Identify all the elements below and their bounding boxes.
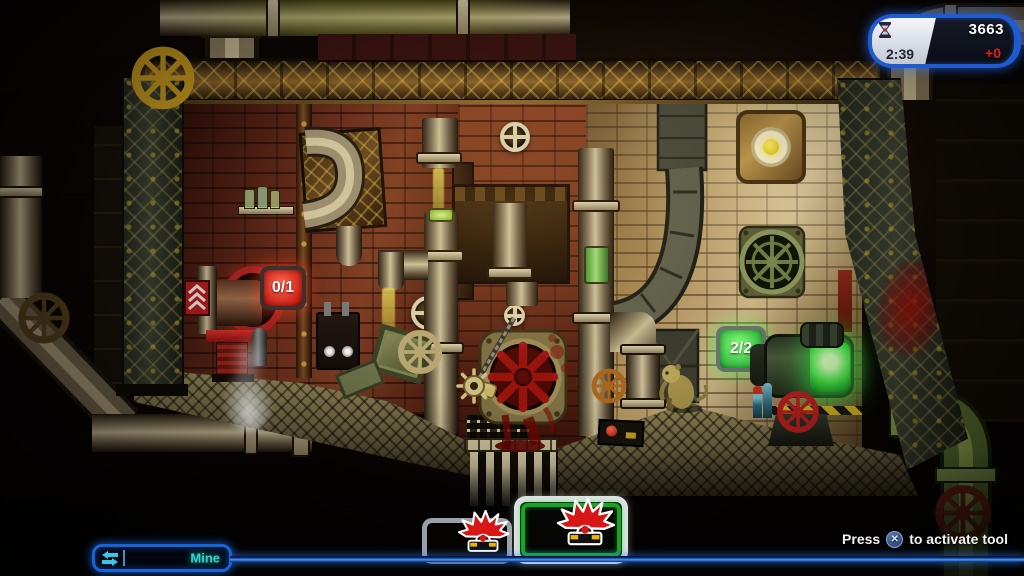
ps-cross-icon: ✕	[886, 531, 903, 548]
mine-icon	[552, 498, 618, 550]
score-timer-panel: 2:39 3663 +0	[868, 14, 1021, 68]
tool-hint: Press ✕ to activate tool	[842, 529, 1008, 549]
mine-icon	[453, 510, 513, 556]
vignette	[0, 0, 1024, 576]
hud-divider-line	[230, 556, 1024, 562]
hourglass-icon	[878, 22, 892, 38]
game-scene: 0/1 2/2	[0, 0, 1024, 576]
score-value: 3663	[969, 21, 1004, 38]
score-delta: +0	[985, 45, 1001, 61]
hint-prefix: Press	[842, 531, 880, 547]
tool-selector[interactable]: Mine	[92, 544, 232, 572]
timer-section: 2:39	[872, 18, 979, 64]
hint-suffix: to activate tool	[909, 531, 1008, 547]
swap-arrows-icon	[100, 551, 120, 566]
timer-value: 2:39	[886, 46, 914, 62]
selector-divider	[123, 550, 125, 566]
tool-name: Mine	[190, 551, 220, 566]
